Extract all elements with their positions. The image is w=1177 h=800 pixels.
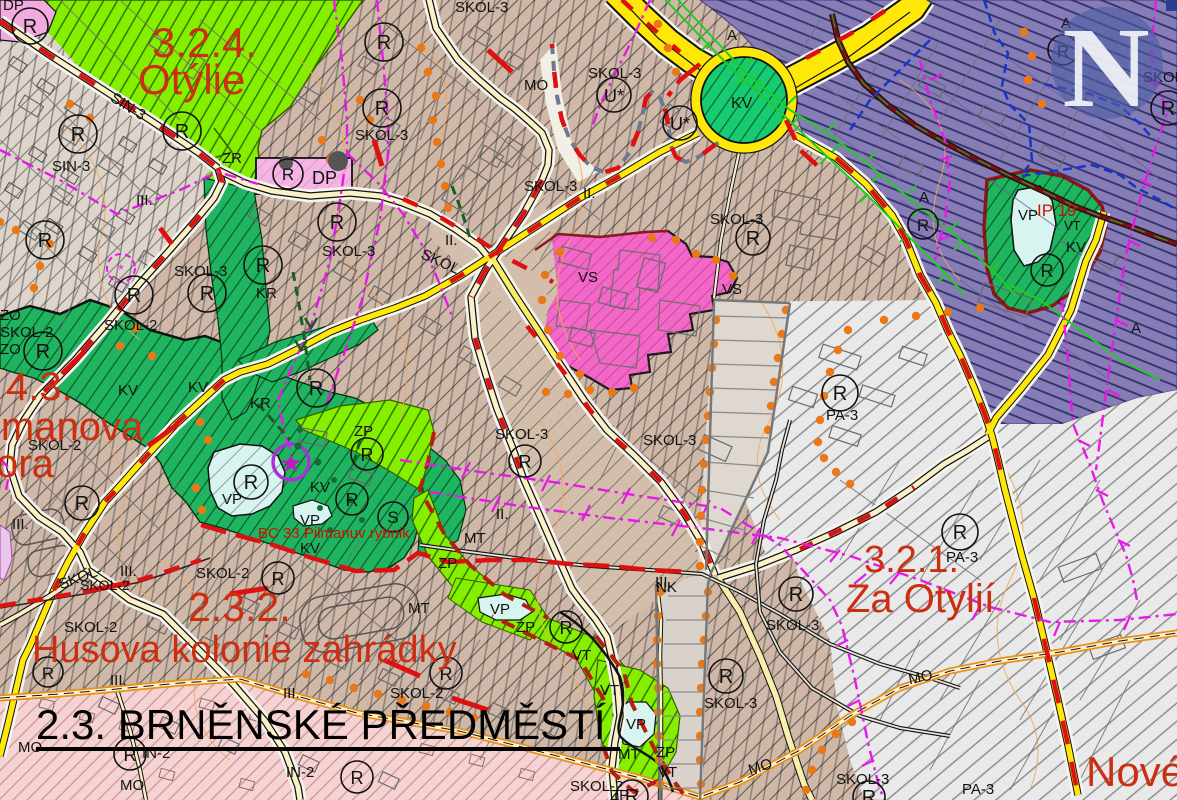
svg-text:ZO: ZO (0, 307, 21, 324)
svg-text:SKOL-3: SKOL-3 (704, 695, 757, 712)
svg-text:R: R (282, 165, 294, 184)
svg-text:SKOL-3: SKOL-3 (588, 65, 641, 82)
svg-text:KV: KV (1066, 239, 1086, 256)
svg-text:KV: KV (300, 540, 320, 557)
svg-text:A: A (727, 27, 737, 44)
svg-text:R: R (38, 230, 52, 252)
svg-text:Za Otylií: Za Otylií (846, 577, 995, 621)
svg-text:ora: ora (0, 442, 55, 486)
svg-text:II.: II. (496, 506, 509, 523)
svg-text:III.: III. (110, 672, 127, 689)
svg-text:R: R (256, 255, 270, 277)
svg-text:VT: VT (658, 764, 677, 781)
svg-text:R: R (346, 490, 359, 510)
svg-text:R: R (746, 228, 760, 250)
svg-text:R: R (1161, 98, 1175, 120)
svg-text:MO: MO (524, 77, 548, 94)
svg-text:MT: MT (464, 530, 486, 547)
svg-text:IP 19: IP 19 (1037, 201, 1076, 220)
svg-text:VP: VP (626, 716, 646, 733)
svg-text:SKOL-2: SKOL-2 (104, 317, 157, 334)
svg-text:R: R (330, 212, 344, 234)
svg-text:PA-3: PA-3 (826, 407, 858, 424)
svg-text:VT: VT (572, 647, 591, 664)
svg-text:R: R (833, 383, 847, 405)
svg-text:R: R (351, 768, 364, 788)
svg-text:SKOL-2: SKOL-2 (390, 685, 443, 702)
svg-text:SKOL-3: SKOL-3 (322, 243, 375, 260)
svg-text:SKOL-3: SKOL-3 (643, 432, 696, 449)
svg-text:SKOL-3: SKOL-3 (355, 127, 408, 144)
svg-text:*: * (118, 261, 124, 277)
svg-text:R: R (1041, 261, 1054, 281)
svg-text:III.: III. (136, 192, 153, 209)
svg-text:U*: U* (604, 86, 624, 106)
svg-text:MT: MT (618, 746, 640, 763)
svg-text:IN-2: IN-2 (286, 764, 314, 781)
svg-text:III.: III. (120, 563, 137, 580)
svg-text:A: A (1131, 320, 1141, 337)
svg-text:ZP: ZP (354, 423, 373, 440)
svg-text:SKOL-3: SKOL-3 (710, 211, 763, 228)
svg-text:MO: MO (120, 777, 144, 794)
svg-text:SKOL-3: SKOL-3 (524, 178, 577, 195)
svg-text:ZO: ZO (0, 341, 21, 358)
svg-text:2.3. BRNĚNSKÉ PŘEDMĚSTÍ: 2.3. BRNĚNSKÉ PŘEDMĚSTÍ (36, 701, 606, 748)
svg-text:SKOL-3: SKOL-3 (455, 0, 508, 16)
svg-text:ZR: ZR (222, 150, 242, 167)
svg-text:SKOL-3: SKOL-3 (836, 771, 889, 788)
svg-text:KR: KR (256, 285, 277, 302)
svg-text:II.: II. (445, 232, 458, 249)
svg-text:VP: VP (1018, 207, 1038, 224)
svg-text:R: R (200, 283, 214, 305)
svg-text:VS: VS (722, 281, 742, 298)
svg-text:R: R (719, 666, 733, 688)
svg-text:Nové: Nové (1086, 748, 1177, 795)
svg-text:R: R (36, 341, 50, 363)
svg-text:R: R (75, 493, 89, 515)
svg-text:R: R (175, 121, 189, 143)
svg-text:4.3.: 4.3. (6, 365, 73, 409)
svg-text:R: R (244, 472, 258, 494)
svg-text:VT: VT (600, 682, 619, 699)
svg-text:Otýlie: Otýlie (138, 56, 245, 103)
svg-text:SKOL-3: SKOL-3 (495, 426, 548, 443)
svg-text:A: A (919, 189, 929, 206)
svg-text:R: R (519, 452, 532, 472)
svg-text:VT: VT (1064, 218, 1081, 233)
svg-text:PA-3: PA-3 (962, 781, 994, 798)
svg-text:VP: VP (490, 601, 510, 618)
svg-text:DP: DP (3, 0, 24, 14)
svg-text:DP: DP (312, 168, 337, 188)
svg-text:N: N (1062, 5, 1149, 131)
svg-text:III.: III. (12, 516, 29, 533)
svg-text:Husova kolonie zahrádky: Husova kolonie zahrádky (32, 629, 457, 671)
svg-text:R: R (377, 32, 391, 54)
svg-text:ZP: ZP (438, 555, 457, 572)
svg-text:ZP: ZP (656, 744, 675, 761)
svg-text:ZP: ZP (516, 619, 535, 636)
svg-text:R: R (309, 378, 323, 400)
svg-text:R: R (23, 16, 37, 38)
svg-text:R: R (71, 124, 85, 146)
svg-text:R: R (361, 445, 374, 465)
svg-text:MT: MT (408, 600, 430, 617)
svg-text:III.: III. (283, 685, 300, 702)
svg-text:R: R (560, 618, 573, 638)
svg-text:R: R (625, 786, 639, 800)
svg-text:KV: KV (118, 382, 138, 399)
svg-text:III.: III. (655, 574, 672, 591)
svg-text:R: R (127, 285, 141, 307)
svg-text:KV: KV (310, 479, 330, 496)
svg-text:KV: KV (188, 379, 208, 396)
svg-text:2.3.2.: 2.3.2. (188, 584, 291, 630)
svg-text:KV: KV (731, 95, 753, 112)
svg-text:SKOL-3: SKOL-3 (174, 263, 227, 280)
svg-text:R: R (789, 584, 803, 606)
svg-text:II.: II. (583, 185, 596, 202)
svg-text:★: ★ (279, 448, 302, 478)
svg-text:3.2.1.: 3.2.1. (864, 539, 959, 581)
svg-text:SKOL-3: SKOL-3 (766, 617, 819, 634)
svg-text:KR: KR (250, 395, 271, 412)
svg-text:U*: U* (670, 114, 690, 134)
svg-text:R: R (375, 98, 389, 120)
svg-text:SIN-3: SIN-3 (52, 158, 90, 175)
svg-text:BC 33 Pilmanuv rybnik: BC 33 Pilmanuv rybnik (258, 525, 410, 542)
svg-text:R: R (917, 216, 929, 235)
svg-text:VS: VS (578, 269, 598, 286)
svg-text:R: R (862, 787, 876, 800)
svg-text:SKOL-2: SKOL-2 (196, 565, 249, 582)
